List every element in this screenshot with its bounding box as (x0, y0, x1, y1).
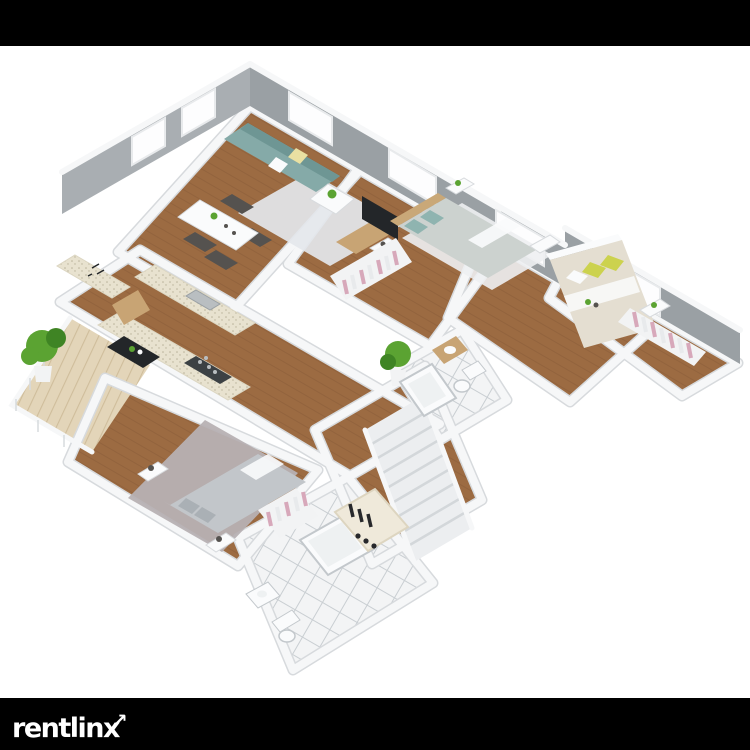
bed-flowers (585, 299, 591, 305)
screenshot-canvas: rentlinx ↗ (0, 0, 750, 750)
nightstand-plant (455, 180, 461, 186)
floor-plan-area (0, 46, 750, 698)
lamp (148, 465, 154, 471)
sink (444, 346, 456, 354)
balcony-plant (21, 347, 39, 365)
nightstand-plant (651, 302, 657, 308)
table-plant (211, 213, 218, 220)
fridge-item (138, 350, 143, 355)
planter (34, 366, 52, 382)
lamp (216, 536, 222, 542)
rentlinx-logo: rentlinx ↗ (12, 708, 128, 748)
top-letterbox-bar (0, 0, 750, 46)
coffee-table-plant (328, 190, 337, 199)
sink-basin (257, 591, 267, 598)
balcony-plant (46, 328, 66, 348)
logo-text: rentlinx (12, 713, 119, 744)
floor-plan-render (0, 46, 750, 698)
table-decor (232, 231, 236, 235)
arrow-up-right-icon: ↗ (112, 710, 128, 732)
table-decor (224, 224, 228, 228)
bed-flowers (594, 303, 599, 308)
toilet (454, 380, 470, 392)
plant (380, 354, 396, 370)
fridge-item (129, 346, 135, 352)
toilet (279, 630, 295, 642)
